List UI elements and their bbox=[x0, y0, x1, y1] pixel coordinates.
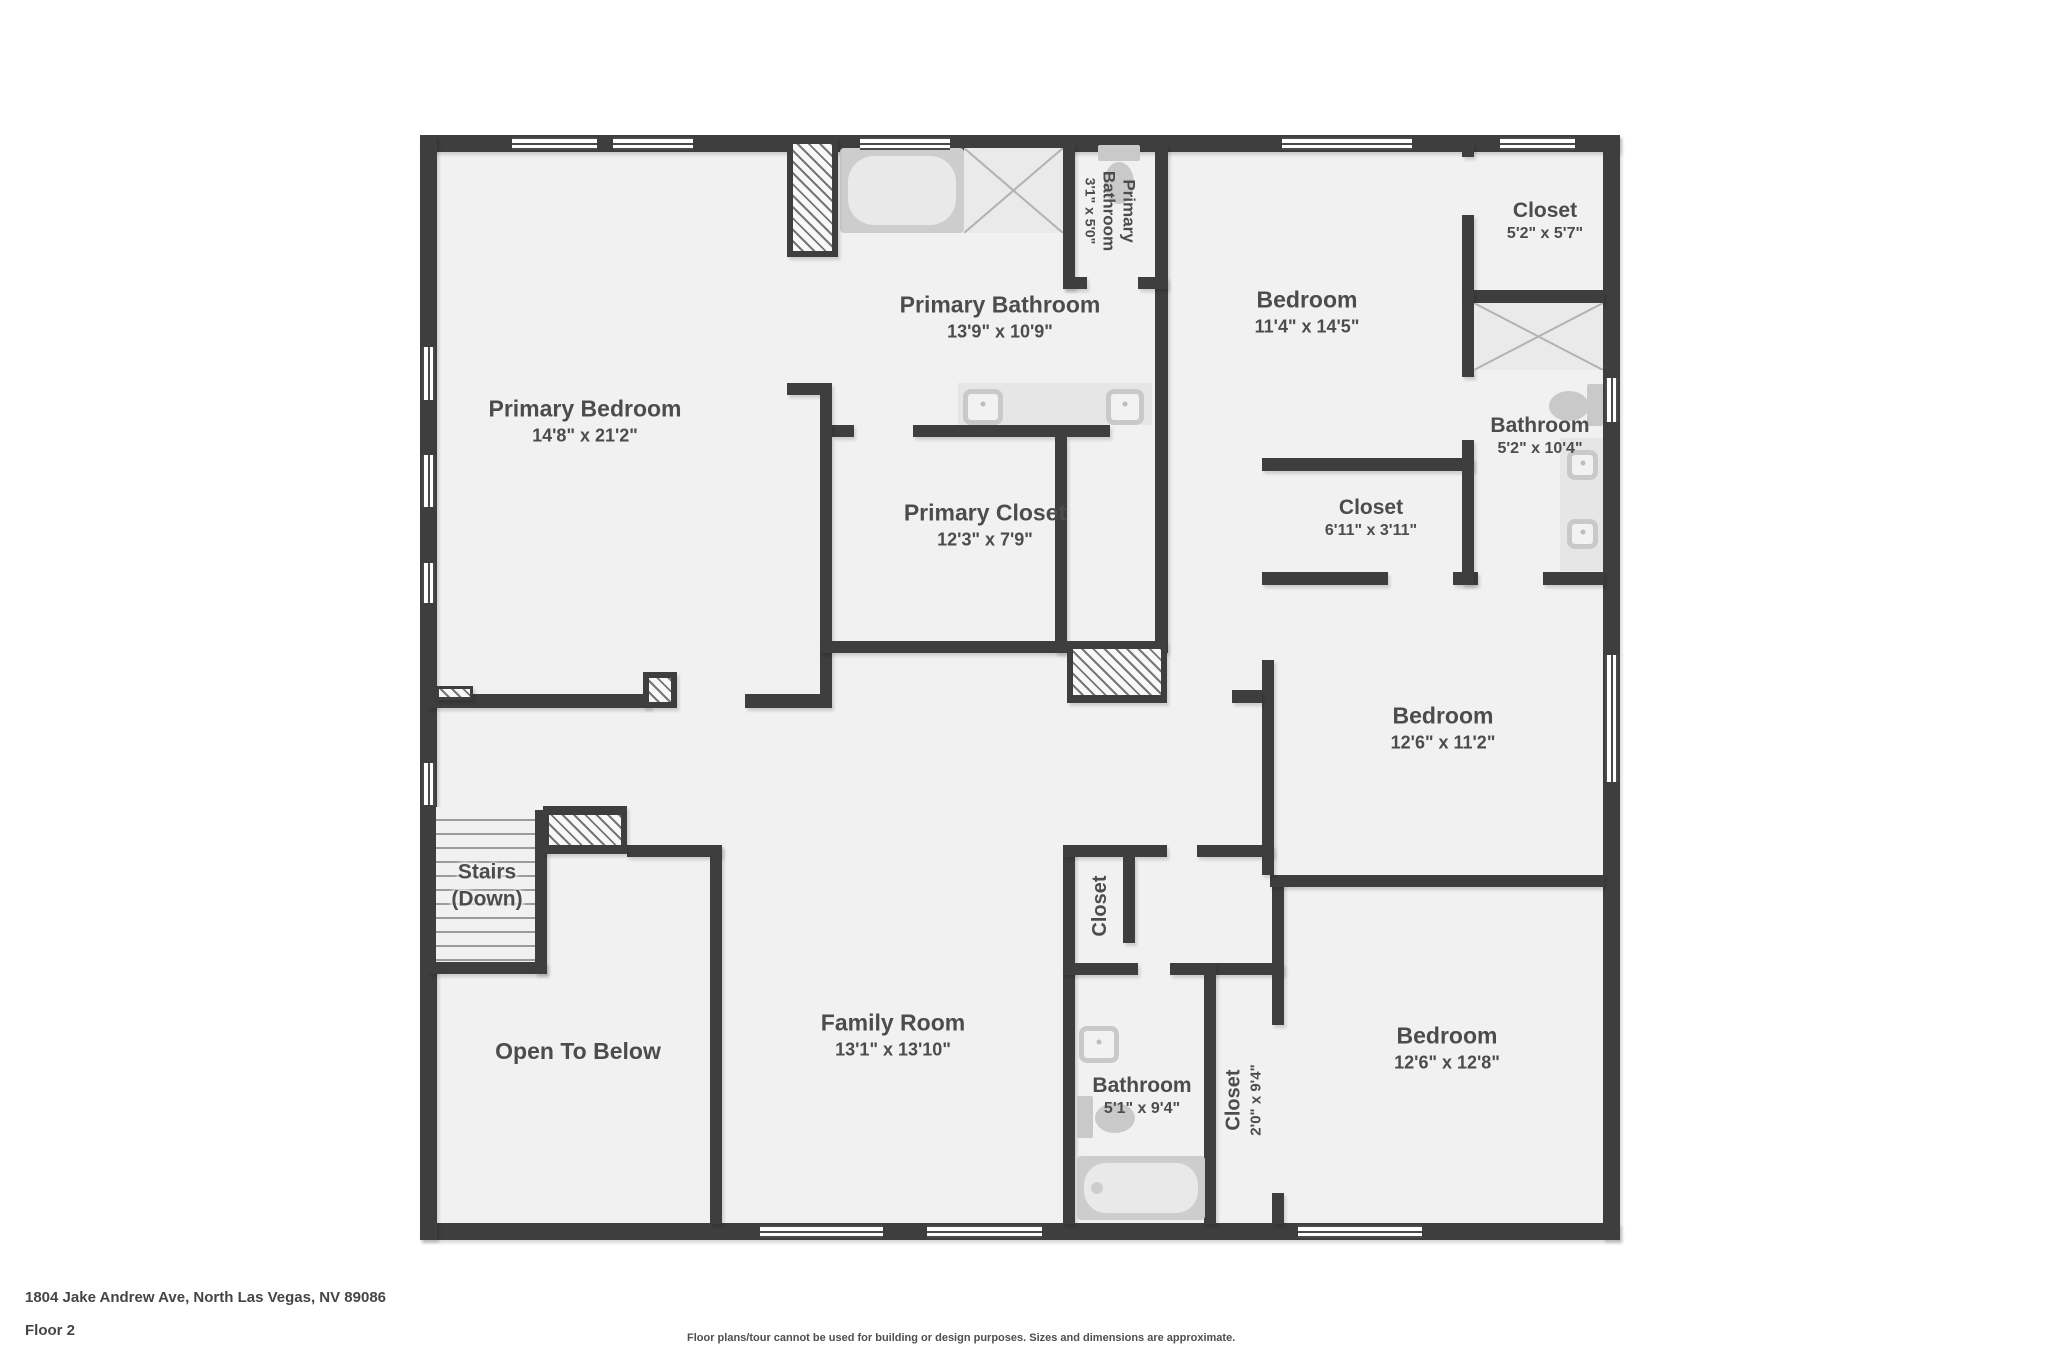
address-text: 1804 Jake Andrew Ave, North Las Vegas, N… bbox=[25, 1289, 386, 1306]
floor-label: Floor 2 bbox=[25, 1322, 75, 1339]
footer: 1804 Jake Andrew Ave, North Las Vegas, N… bbox=[0, 0, 2048, 1365]
disclaimer-text: Floor plans/tour cannot be used for buil… bbox=[687, 1332, 1235, 1344]
